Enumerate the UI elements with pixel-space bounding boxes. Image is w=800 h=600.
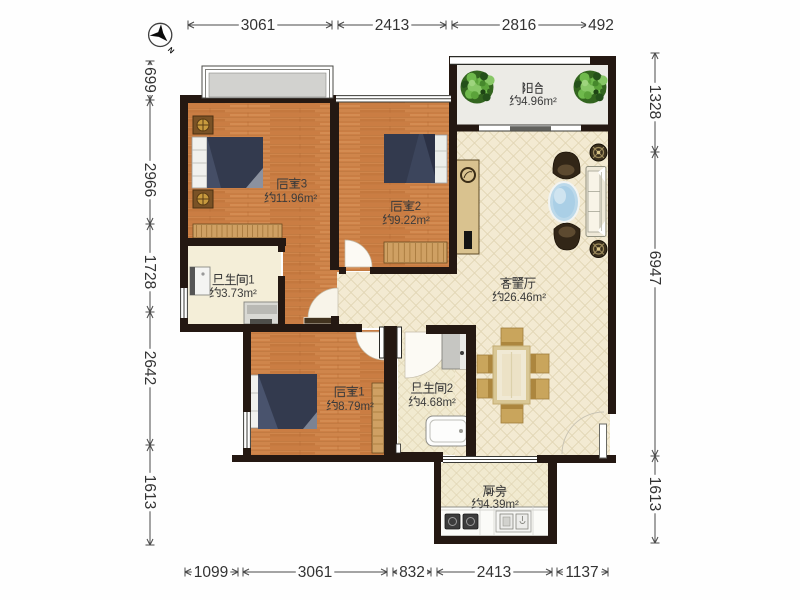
svg-text:4.96m²: 4.96m² <box>521 96 557 108</box>
svg-text:8.79m²: 8.79m² <box>338 401 374 413</box>
svg-text:492: 492 <box>588 17 614 34</box>
svg-text:9.22m²: 9.22m² <box>394 215 430 227</box>
svg-text:1: 1 <box>248 275 254 287</box>
svg-text:1137: 1137 <box>565 564 598 581</box>
svg-text:3: 3 <box>301 179 307 191</box>
svg-text:1613: 1613 <box>646 477 663 511</box>
svg-text:1: 1 <box>358 387 364 399</box>
svg-text:2: 2 <box>415 201 421 213</box>
svg-text:699: 699 <box>141 67 158 93</box>
svg-text:3061: 3061 <box>241 17 275 34</box>
svg-text:1328: 1328 <box>646 85 663 119</box>
svg-text:4.39m²: 4.39m² <box>483 499 519 511</box>
svg-text:1613: 1613 <box>141 475 158 509</box>
svg-text:3.73m²: 3.73m² <box>221 288 257 300</box>
svg-text:1728: 1728 <box>141 255 158 289</box>
svg-text:2816: 2816 <box>502 17 536 34</box>
svg-text:2: 2 <box>447 383 453 395</box>
svg-text:3061: 3061 <box>298 564 332 581</box>
svg-text:1099: 1099 <box>194 564 228 581</box>
svg-text:2966: 2966 <box>141 163 158 197</box>
svg-text:2413: 2413 <box>477 564 511 581</box>
svg-text:2413: 2413 <box>375 17 409 34</box>
svg-text:26.46m²: 26.46m² <box>504 292 546 304</box>
svg-text:832: 832 <box>399 564 425 581</box>
svg-text:2642: 2642 <box>141 351 158 385</box>
svg-text:11.96m²: 11.96m² <box>276 193 318 205</box>
svg-text:6947: 6947 <box>646 251 663 285</box>
svg-text:4.68m²: 4.68m² <box>420 397 456 409</box>
